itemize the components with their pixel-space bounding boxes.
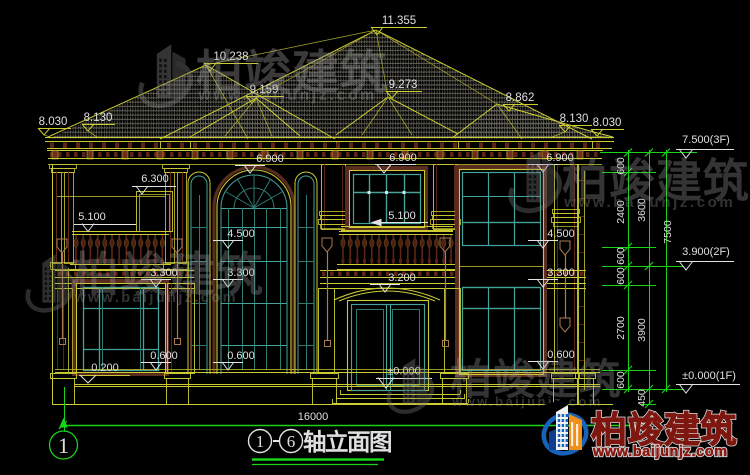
- svg-text:8.130: 8.130: [560, 113, 589, 125]
- svg-text:1: 1: [58, 433, 69, 458]
- svg-text:6.300: 6.300: [141, 173, 169, 185]
- svg-text:5.100: 5.100: [78, 211, 106, 223]
- svg-text:3900: 3900: [636, 318, 648, 342]
- svg-text:3.900(2F): 3.900(2F): [682, 246, 730, 258]
- svg-text:600: 600: [615, 267, 627, 285]
- svg-text:0.200: 0.200: [91, 362, 119, 374]
- svg-text:6: 6: [287, 432, 296, 451]
- svg-text:±0.000(1F): ±0.000(1F): [682, 370, 736, 382]
- svg-text:450: 450: [636, 389, 648, 407]
- svg-text:6.900: 6.900: [389, 152, 417, 164]
- svg-text:8.130: 8.130: [84, 112, 113, 124]
- svg-text:1: 1: [256, 432, 265, 451]
- svg-text:7500: 7500: [662, 220, 674, 244]
- svg-text:8.030: 8.030: [593, 117, 622, 129]
- svg-text:www.baijunjz.com: www.baijunjz.com: [73, 290, 238, 306]
- svg-text:3.200: 3.200: [388, 272, 416, 284]
- svg-text:8.030: 8.030: [39, 116, 68, 128]
- svg-text:www.baijunjz.com: www.baijunjz.com: [451, 394, 603, 409]
- svg-text:www.baijunjz.com: www.baijunjz.com: [592, 444, 728, 460]
- svg-text:www.baijunjz.com: www.baijunjz.com: [563, 194, 735, 211]
- svg-text:www.baijunjz.com: www.baijunjz.com: [197, 87, 377, 104]
- svg-text:16000: 16000: [298, 411, 329, 423]
- svg-text:9.273: 9.273: [389, 79, 418, 91]
- svg-text:5.100: 5.100: [388, 210, 416, 222]
- svg-text:0.600: 0.600: [227, 350, 255, 362]
- svg-text:2700: 2700: [615, 316, 627, 340]
- svg-text:6.900: 6.900: [256, 153, 284, 165]
- svg-text:8.862: 8.862: [506, 92, 535, 104]
- svg-text:4.500: 4.500: [547, 228, 575, 240]
- svg-text:4.500: 4.500: [227, 228, 255, 240]
- svg-text:3.300: 3.300: [547, 267, 575, 279]
- svg-text:600: 600: [615, 247, 627, 265]
- svg-text:11.355: 11.355: [382, 15, 416, 27]
- svg-text:轴立面图: 轴立面图: [303, 428, 391, 455]
- svg-text:0.600: 0.600: [150, 350, 178, 362]
- svg-text:7.500(3F): 7.500(3F): [682, 134, 730, 146]
